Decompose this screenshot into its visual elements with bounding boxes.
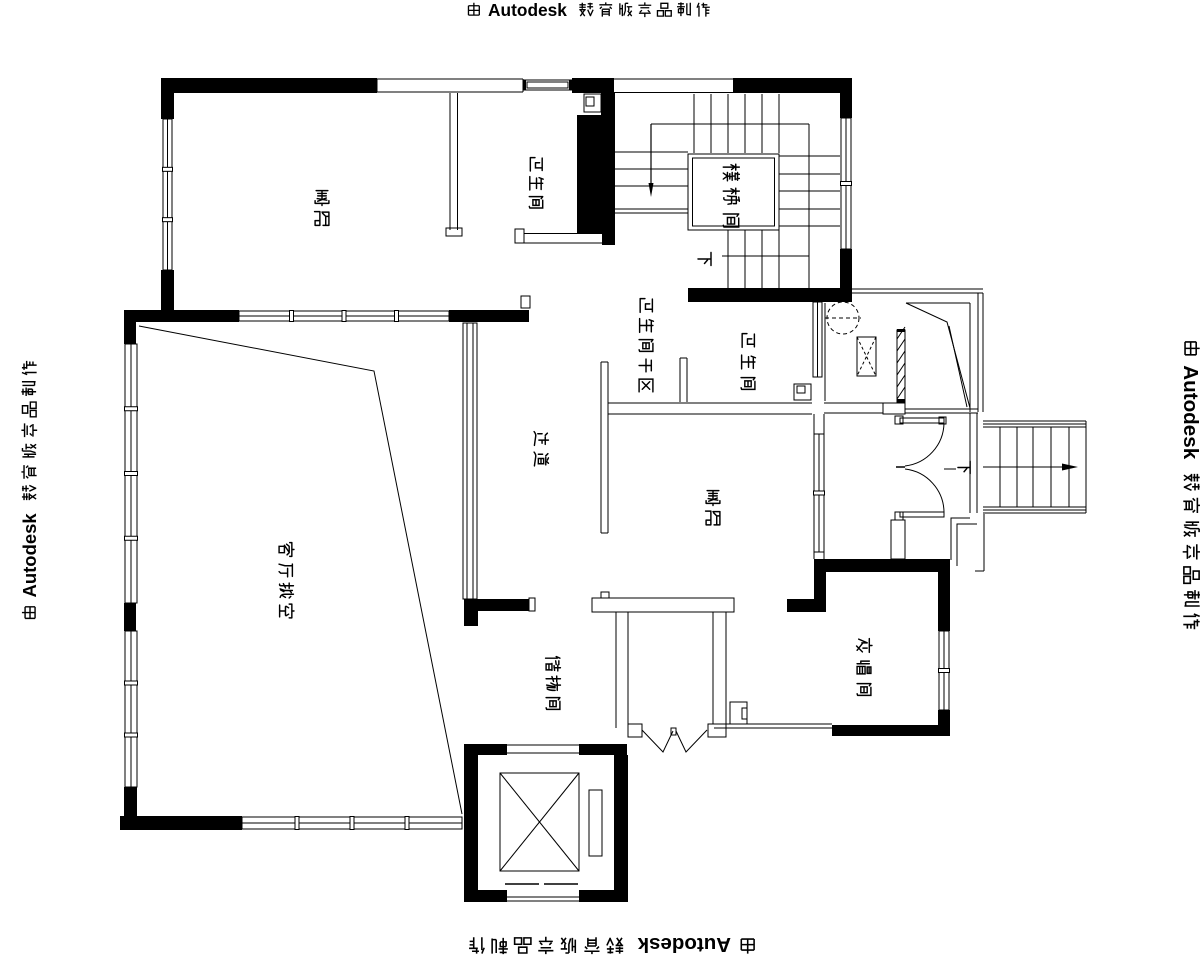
svg-text:Autodesk: Autodesk	[1179, 365, 1200, 459]
svg-text:Autodesk: Autodesk	[637, 933, 731, 956]
svg-text:Autodesk: Autodesk	[488, 0, 567, 20]
svg-text:Autodesk: Autodesk	[19, 513, 40, 598]
